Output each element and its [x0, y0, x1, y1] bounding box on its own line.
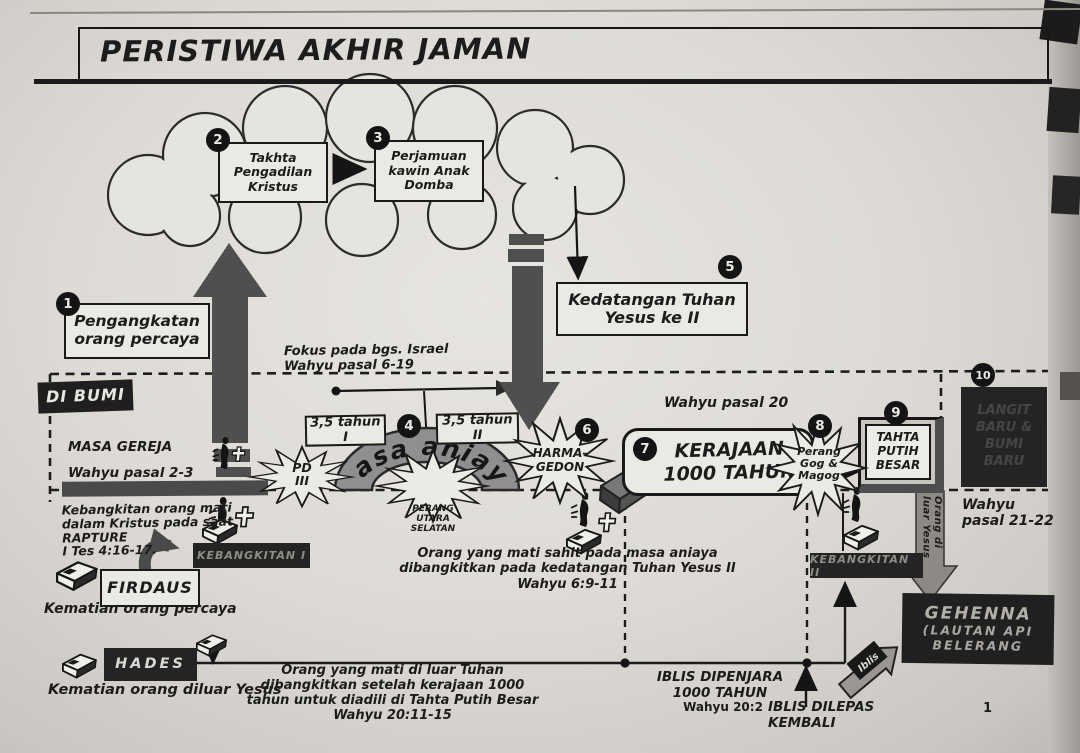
war-north-south-label: PERANG UTARA SELATAN	[398, 504, 468, 534]
event-number-7: 7	[633, 437, 657, 461]
event-number-9: 9	[884, 401, 908, 425]
event-number-5: 5	[718, 255, 742, 279]
event-number-2: 2	[206, 128, 230, 152]
event-number-4: 4	[397, 414, 421, 438]
pd3-label: PD III	[272, 461, 332, 487]
gog-magog-label: Perang Gog & Magog	[786, 446, 852, 482]
event-number-10: 10	[971, 363, 995, 387]
event-number-3: 3	[366, 126, 390, 150]
armageddon-label: HARMA- GEDON	[520, 447, 600, 475]
event-number-6: 6	[575, 418, 599, 442]
event-number-1: 1	[56, 292, 80, 316]
scanned-diagram-page: PERISTIWA AKHIR JAMAN	[0, 0, 1080, 753]
event-number-8: 8	[808, 414, 832, 438]
